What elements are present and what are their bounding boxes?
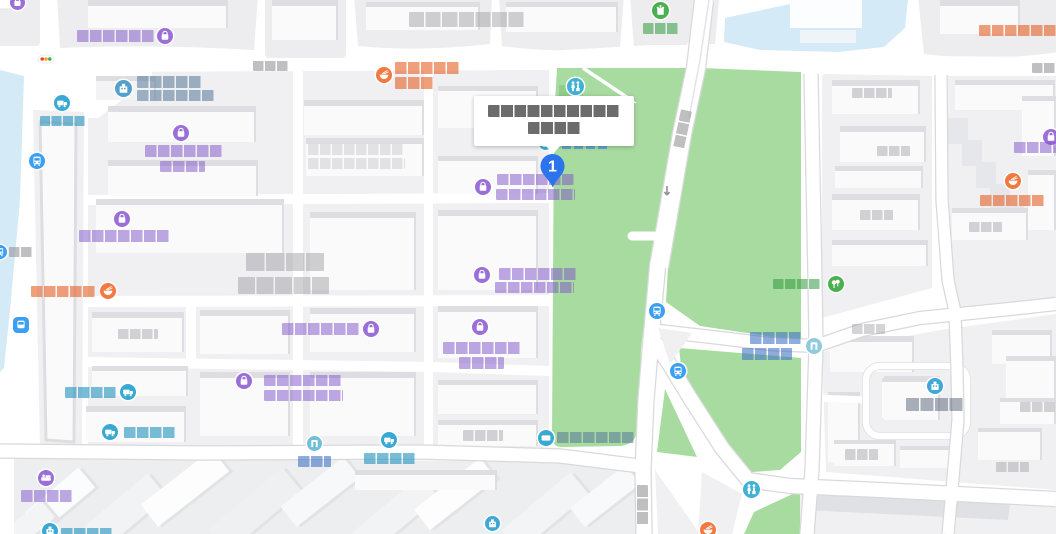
svg-text:1: 1 — [548, 159, 557, 176]
